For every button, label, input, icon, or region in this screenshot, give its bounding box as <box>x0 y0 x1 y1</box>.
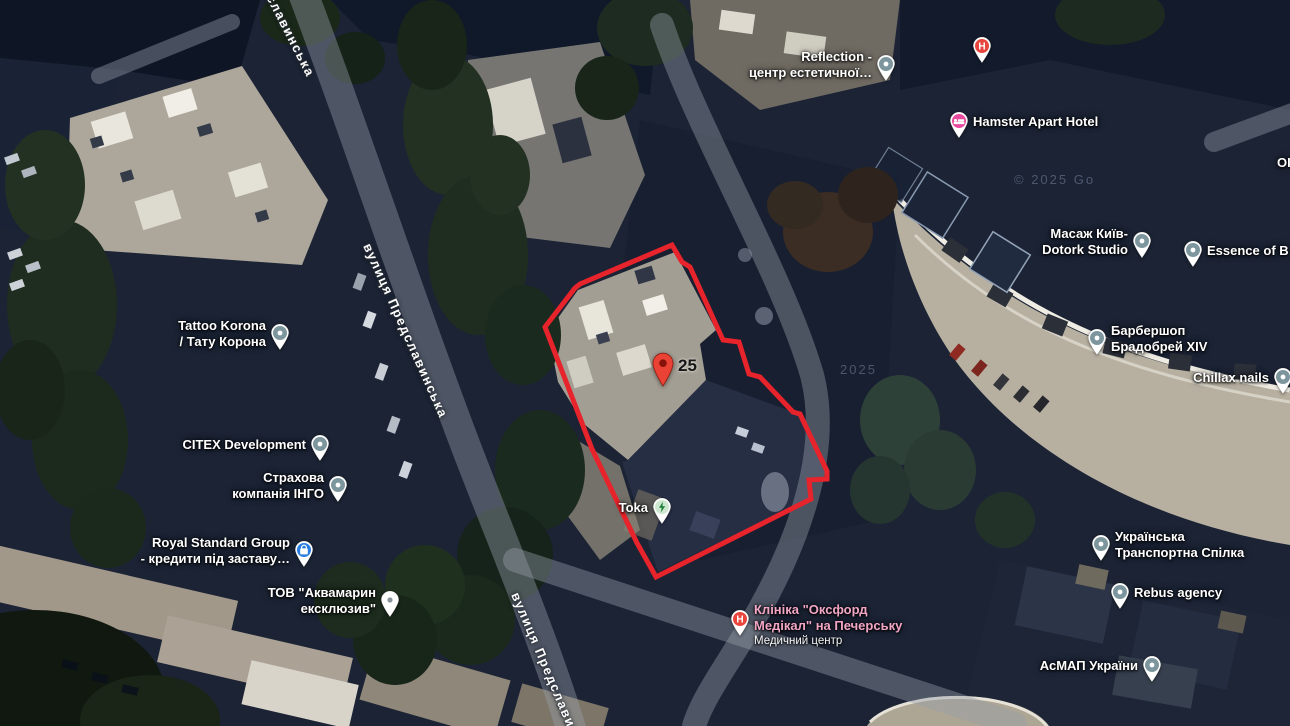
poi-label-ingo[interactable]: Страховакомпанія ІНГО <box>232 470 324 502</box>
poi-label-line[interactable]: Страхова <box>232 470 324 486</box>
copyright-watermark: © 2025 Go <box>1014 172 1095 187</box>
poi-label-rebus[interactable]: Rebus agency <box>1134 585 1222 601</box>
poi-label-line[interactable]: Медікал" на Печерську <box>754 618 902 634</box>
poi-label-line[interactable]: Reflection - <box>749 49 872 65</box>
poi-label-line[interactable]: Toka <box>619 500 648 516</box>
poi-label-line[interactable]: Барбершоп <box>1111 323 1207 339</box>
poi-label-line[interactable]: ОІ <box>1277 155 1290 171</box>
poi-label-tattoo[interactable]: Tattoo Korona/ Тату Корона <box>178 318 266 350</box>
poi-label-uts[interactable]: УкраїнськаТранспортна Спілка <box>1115 529 1244 561</box>
poi-label-line[interactable]: Dotork Studio <box>1042 242 1128 258</box>
hotel-pin-icon[interactable] <box>948 111 970 139</box>
poi-label-line[interactable]: / Тату Корона <box>178 334 266 350</box>
poi-label-masazh[interactable]: Масаж Київ-Dotork Studio <box>1042 226 1128 258</box>
poi-label-reflection[interactable]: Reflection -центр естетичної… <box>749 49 872 81</box>
poi-label-edge-partial[interactable]: ОІ <box>1277 155 1290 171</box>
default-pin-icon[interactable] <box>1131 231 1153 259</box>
poi-label-line[interactable]: CITEX Development <box>182 437 306 453</box>
satellite-map[interactable]: 25 Reflection -центр естетичної…HHamster… <box>0 0 1290 726</box>
default-pin-icon[interactable] <box>1086 328 1108 356</box>
poi-label-line[interactable]: Royal Standard Group <box>141 535 290 551</box>
default-pin-icon[interactable] <box>309 434 331 462</box>
poi-label-hamster[interactable]: Hamster Apart Hotel <box>973 114 1098 130</box>
poi-label-line[interactable]: Essence of B <box>1207 243 1289 259</box>
hospital-pin-icon[interactable]: H <box>729 609 751 637</box>
poi-label-citex[interactable]: CITEX Development <box>182 437 306 453</box>
poi-label-line[interactable]: Українська <box>1115 529 1244 545</box>
property-marker-label[interactable]: 25 <box>678 356 697 376</box>
poi-label-royal[interactable]: Royal Standard Group- кредити під застав… <box>141 535 290 567</box>
default-pin-icon[interactable] <box>269 323 291 351</box>
default-pin-icon[interactable] <box>327 475 349 503</box>
poi-label-line[interactable]: Транспортна Спілка <box>1115 545 1244 561</box>
default-pin-icon[interactable] <box>1109 582 1131 610</box>
poi-label-chillax[interactable]: Chillax nails <box>1193 370 1269 386</box>
poi-label-toka[interactable]: Toka <box>619 500 648 516</box>
poi-label-line[interactable]: - кредити під заставу… <box>141 551 290 567</box>
default-pin-icon[interactable] <box>1272 367 1290 395</box>
poi-label-clinic[interactable]: Клініка "ОксфордМедікал" на ПечерськуМед… <box>754 602 902 648</box>
poi-label-line[interactable]: Масаж Київ- <box>1042 226 1128 242</box>
default-pin-icon[interactable] <box>875 54 897 82</box>
poi-label-line[interactable]: ексклюзив" <box>268 601 376 617</box>
poi-label-subtitle: Медичний центр <box>754 634 902 648</box>
default-pin-icon[interactable] <box>1182 240 1204 268</box>
satellite-imagery <box>0 0 1290 726</box>
svg-text:H: H <box>736 615 743 626</box>
poi-label-aquamarin[interactable]: ТОВ "Аквамаринексклюзив" <box>268 585 376 617</box>
poi-label-barbershop[interactable]: БарбершопБрадобрей XIV <box>1111 323 1207 355</box>
default-pin-icon[interactable] <box>1090 534 1112 562</box>
finance-pin-icon[interactable] <box>293 540 315 568</box>
poi-label-line[interactable]: компанія ІНГО <box>232 486 324 502</box>
ev-pin-icon[interactable] <box>651 497 673 525</box>
poi-label-line[interactable]: АсМАП України <box>1040 658 1138 674</box>
copyright-watermark: 2025 <box>840 362 877 377</box>
poi-label-line[interactable]: Rebus agency <box>1134 585 1222 601</box>
poi-label-asmap[interactable]: АсМАП України <box>1040 658 1138 674</box>
default-pin-icon[interactable] <box>1141 655 1163 683</box>
plain-pin-icon[interactable] <box>379 590 401 618</box>
poi-label-line[interactable]: центр естетичної… <box>749 65 872 81</box>
poi-label-line[interactable]: Брадобрей XIV <box>1111 339 1207 355</box>
poi-label-essence[interactable]: Essence of B <box>1207 243 1289 259</box>
poi-label-line[interactable]: Клініка "Оксфорд <box>754 602 902 618</box>
poi-label-line[interactable]: Chillax nails <box>1193 370 1269 386</box>
poi-label-line[interactable]: Tattoo Korona <box>178 318 266 334</box>
poi-label-line[interactable]: Hamster Apart Hotel <box>973 114 1098 130</box>
svg-text:H: H <box>978 42 985 53</box>
hospital-pin-icon[interactable]: H <box>971 36 993 64</box>
poi-label-line[interactable]: ТОВ "Аквамарин <box>268 585 376 601</box>
property-marker-icon[interactable] <box>650 351 676 387</box>
